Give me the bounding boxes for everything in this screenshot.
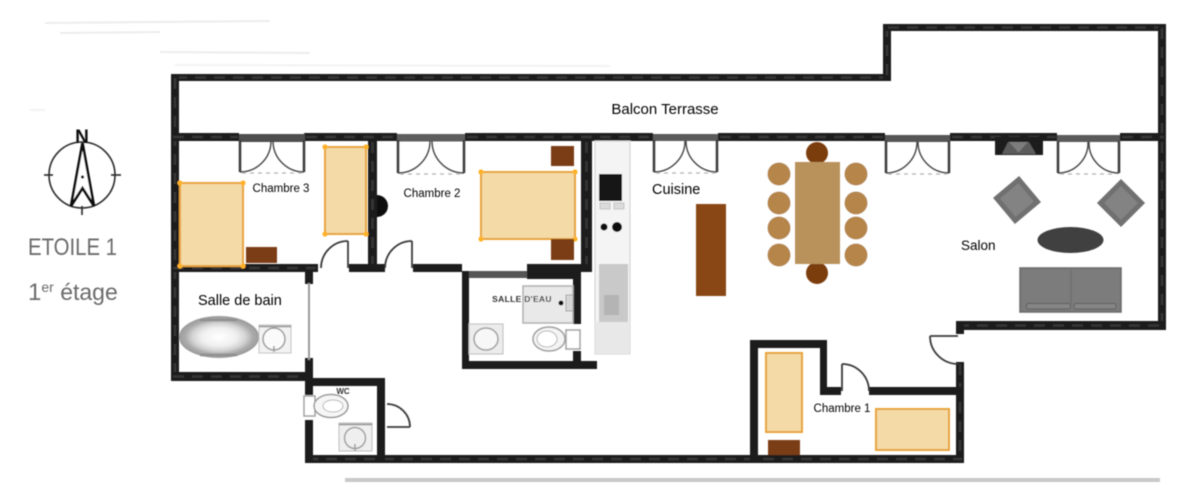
svg-text:Chambre 3: Chambre 3	[253, 183, 310, 195]
svg-text:Salle de bain: Salle de bain	[198, 293, 282, 309]
svg-text:WC: WC	[336, 387, 350, 396]
svg-text:SALLE D'EAU: SALLE D'EAU	[492, 294, 552, 304]
svg-text:ETOILE 1: ETOILE 1	[28, 234, 117, 261]
svg-text:Cuisine: Cuisine	[652, 182, 700, 198]
svg-text:Balcon Terrasse: Balcon Terrasse	[611, 101, 718, 118]
svg-text:Chambre 1: Chambre 1	[814, 403, 871, 415]
svg-text:Chambre 2: Chambre 2	[404, 188, 461, 200]
svg-text:Salon: Salon	[961, 238, 996, 253]
svg-text:1er étage: 1er étage	[28, 279, 118, 306]
